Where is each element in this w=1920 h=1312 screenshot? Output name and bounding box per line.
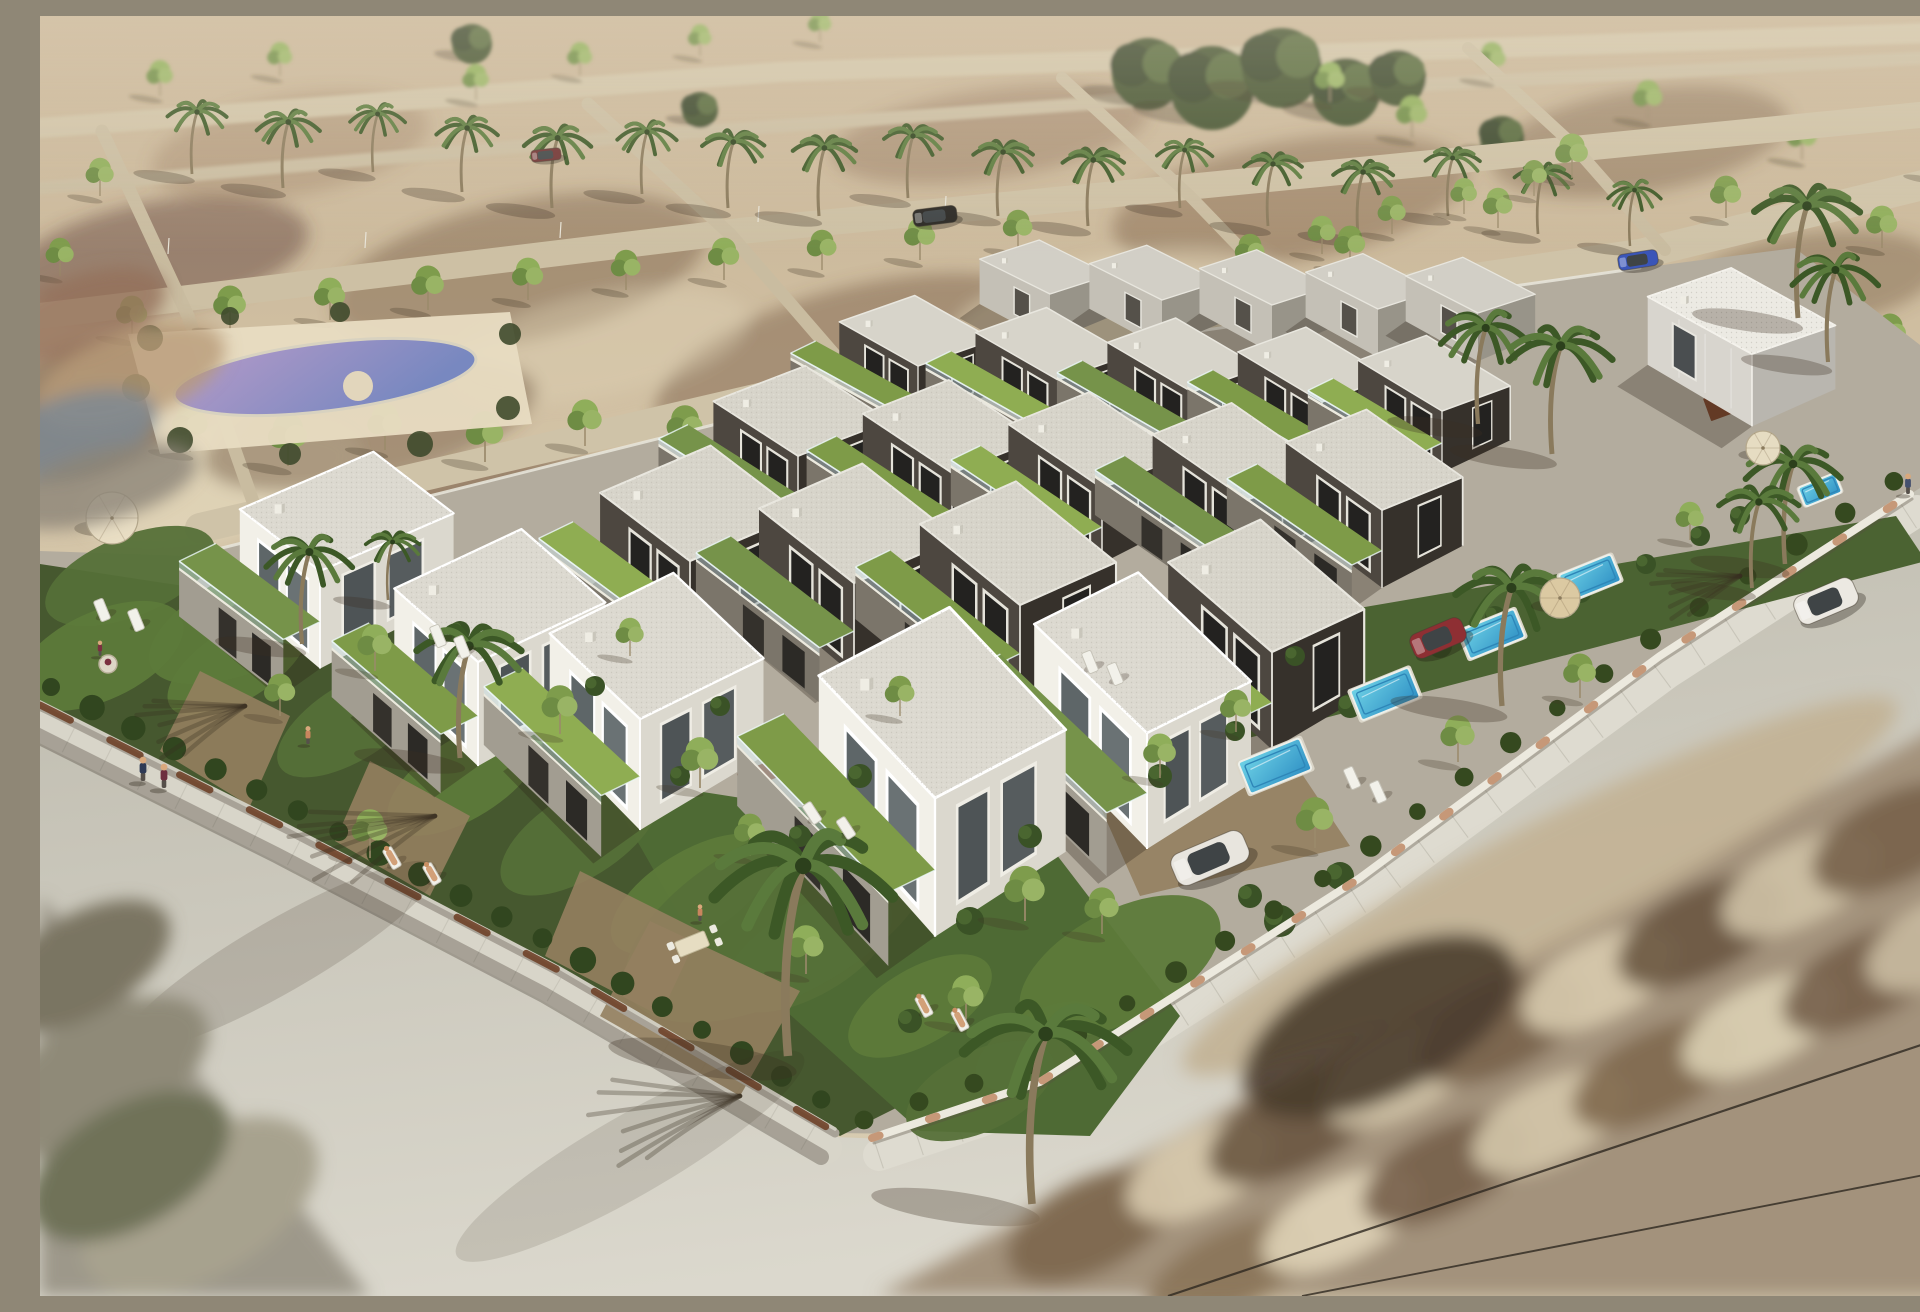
scene-canvas xyxy=(40,16,1920,1296)
aerial-development-render xyxy=(40,16,1920,1296)
haze-overlay xyxy=(40,16,1920,256)
